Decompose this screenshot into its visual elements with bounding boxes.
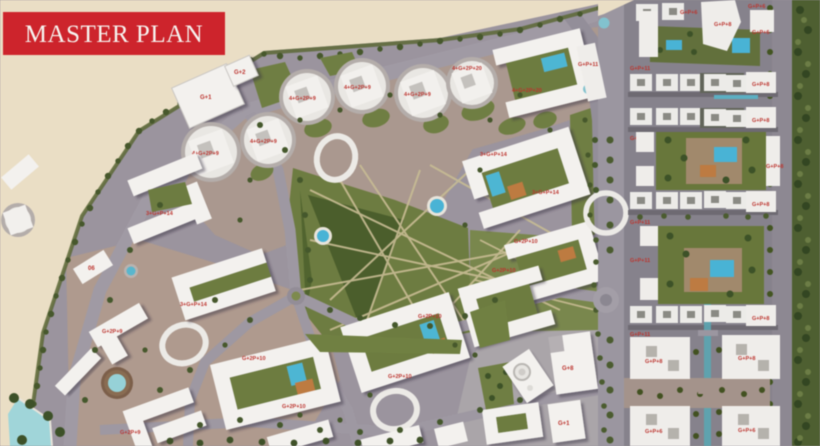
- svg-text:4+G+2P+9: 4+G+2P+9: [250, 139, 277, 145]
- svg-text:G+P+6: G+P+6: [680, 10, 697, 16]
- svg-text:4+G+2P+20: 4+G+2P+20: [452, 66, 482, 72]
- svg-text:G+2P+10: G+2P+10: [418, 314, 442, 320]
- svg-text:3+G+P+14: 3+G+P+14: [146, 211, 174, 217]
- svg-text:G+P+6: G+P+6: [752, 30, 769, 36]
- svg-text:06: 06: [88, 266, 95, 272]
- svg-text:G+2P+10: G+2P+10: [514, 239, 538, 245]
- svg-text:G+2P+10: G+2P+10: [388, 374, 412, 380]
- svg-text:G+P+8: G+P+8: [752, 202, 769, 208]
- svg-text:3+G+P+14: 3+G+P+14: [480, 152, 508, 158]
- svg-text:G+2P+9: G+2P+9: [102, 329, 123, 335]
- svg-text:G+P+8: G+P+8: [738, 356, 755, 362]
- svg-text:G+1: G+1: [558, 421, 570, 427]
- svg-text:G+P+11: G+P+11: [630, 220, 650, 226]
- svg-text:3+G+P+14: 3+G+P+14: [180, 302, 208, 308]
- svg-text:G+8: G+8: [562, 366, 574, 372]
- svg-text:4+G+2P+20: 4+G+2P+20: [512, 88, 542, 94]
- svg-text:G+P+6: G+P+6: [738, 428, 755, 434]
- svg-text:G+2P+10: G+2P+10: [242, 356, 266, 362]
- svg-text:G+P+8: G+P+8: [714, 22, 731, 28]
- svg-text:G+P+11: G+P+11: [578, 62, 598, 68]
- svg-text:G+P+8: G+P+8: [752, 118, 769, 124]
- svg-text:G+P+8: G+P+8: [752, 82, 769, 88]
- svg-text:G+P+11: G+P+11: [630, 66, 650, 72]
- svg-text:G+P+8: G+P+8: [766, 164, 783, 170]
- svg-text:G+P+11: G+P+11: [630, 258, 650, 264]
- svg-text:MASTER PLAN: MASTER PLAN: [25, 21, 203, 48]
- svg-text:G+P+8: G+P+8: [645, 359, 662, 365]
- svg-text:4+G+2P+9: 4+G+2P+9: [289, 96, 316, 102]
- svg-text:4+G+2P+9: 4+G+2P+9: [404, 92, 431, 98]
- svg-text:G+2P+10: G+2P+10: [282, 404, 306, 410]
- svg-text:G+1: G+1: [200, 95, 212, 101]
- svg-text:G+P+8: G+P+8: [752, 316, 769, 322]
- svg-text:3+G+P+14: 3+G+P+14: [532, 190, 560, 196]
- svg-text:G+2P+9: G+2P+9: [120, 430, 141, 436]
- svg-text:G+P+6: G+P+6: [748, 4, 765, 10]
- svg-text:4+G+2P+9: 4+G+2P+9: [344, 85, 371, 91]
- svg-text:G+2P+10: G+2P+10: [492, 268, 516, 274]
- svg-text:G+P+6: G+P+6: [645, 429, 662, 435]
- svg-text:G+2: G+2: [234, 70, 246, 76]
